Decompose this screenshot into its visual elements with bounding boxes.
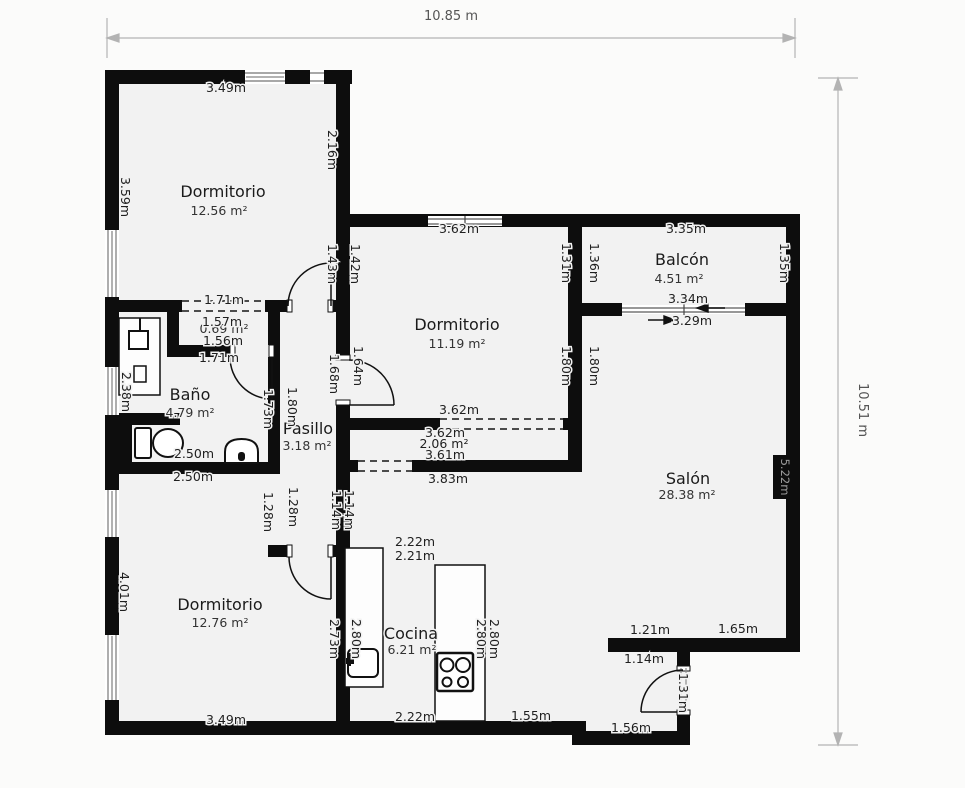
room-label-dorm3: Dormitorio — [177, 595, 262, 614]
measurement-label: 1.31m — [676, 673, 691, 713]
measurement-label: 1.57m — [202, 314, 242, 329]
measurement-label: 1.14m — [342, 490, 357, 530]
measurement-label: 2.16m — [325, 130, 340, 170]
measurement-label: 2.80m — [474, 619, 489, 659]
measurement-label: 1.42m — [348, 244, 363, 284]
measurement-label: 2.73m — [327, 619, 342, 659]
room-area-dorm3: 12.76 m² — [192, 615, 249, 630]
arrow-down-icon — [834, 733, 842, 745]
measurement-label: 3.49m — [206, 712, 246, 727]
room-area-bano: 4.79 m² — [166, 405, 215, 420]
window-icon — [241, 70, 289, 84]
wall — [268, 300, 280, 474]
measurement-label: 1.73m — [261, 389, 276, 429]
room-area-dorm1: 12.56 m² — [191, 203, 248, 218]
measurement-label: 1.36m — [587, 243, 602, 283]
opening-dashed — [358, 460, 412, 472]
overall-width-label: 10.85 m — [424, 9, 478, 24]
wall — [105, 721, 584, 735]
wall-badge-label: 5.22m — [778, 459, 792, 496]
room-area-salon: 28.38 m² — [659, 487, 716, 502]
measurement-label: 2.22m — [395, 534, 435, 549]
measurement-label: 1.64m — [351, 346, 366, 386]
measurement-label: 1.14m — [624, 651, 664, 666]
measurement-label: 2.38m — [119, 372, 134, 412]
arrow-right-icon — [783, 34, 795, 42]
floor-plan: Dormitorio12.56 m²Dormitorio11.19 m²Balc… — [0, 0, 965, 788]
measurement-label: 3.59m — [118, 177, 133, 217]
bath-partition — [119, 413, 132, 462]
measurement-label: 1.71m — [199, 350, 239, 365]
dimension-line-right — [818, 78, 858, 745]
measurement-label: 3.34m — [668, 291, 708, 306]
wall — [333, 300, 350, 312]
wall — [608, 638, 800, 652]
measurement-label: 3.35m — [666, 221, 706, 236]
measurement-label: 3.61m — [425, 447, 465, 462]
room-area-pasillo: 3.18 m² — [283, 438, 332, 453]
measurement-label: 2.22m — [395, 709, 435, 724]
measurement-label: 4.01m — [117, 572, 132, 612]
window-icon — [105, 363, 119, 419]
stove-icon — [437, 653, 473, 691]
room-area-cocina: 6.21 m² — [388, 642, 437, 657]
wall — [349, 460, 358, 472]
kitchen-counter — [345, 548, 383, 687]
room-label-dorm2: Dormitorio — [414, 315, 499, 334]
room-label-dorm1: Dormitorio — [180, 182, 265, 201]
measurement-label: 1.56m — [611, 720, 651, 735]
room-area-dorm2: 11.19 m² — [429, 336, 486, 351]
measurement-label: 3.29m — [672, 313, 712, 328]
measurement-label: 1.56m — [203, 333, 243, 348]
room-area-balcon: 4.51 m² — [655, 271, 704, 286]
measurement-label: 2.50m — [174, 446, 214, 461]
bidet-icon — [225, 439, 258, 463]
wall — [568, 303, 622, 316]
vanity-sink-icon — [129, 331, 148, 349]
measurement-label: 2.21m — [395, 548, 435, 563]
arrow-up-icon — [834, 78, 842, 90]
window-icon — [105, 226, 119, 301]
measurement-label: 1.65m — [718, 621, 758, 636]
wall — [105, 300, 182, 312]
measurement-label: 1.21m — [630, 622, 670, 637]
measurement-label: 3.49m — [206, 80, 246, 95]
wall — [268, 545, 287, 557]
wall — [336, 70, 350, 355]
room-label-bano: Baño — [170, 385, 211, 404]
measurement-label: 3.83m — [428, 471, 468, 486]
measurement-label: 1.80m — [559, 346, 574, 386]
room-label-salon: Salón — [666, 469, 710, 488]
measurement-label: 1.14m — [329, 490, 344, 530]
wall — [745, 303, 800, 316]
window-icon — [105, 631, 119, 704]
dimension-line-top — [107, 18, 795, 58]
room-label-cocina: Cocina — [384, 624, 438, 643]
room-label-balcon: Balcón — [655, 250, 709, 269]
measurement-label: 1.43m — [325, 244, 340, 284]
measurement-label: 3.62m — [439, 402, 479, 417]
measurement-label: 1.80m — [285, 387, 300, 427]
measurement-label: 2.80m — [349, 619, 364, 659]
measurement-label: 2.50m — [173, 469, 213, 484]
measurement-label: 1.55m — [511, 708, 551, 723]
wall — [563, 418, 582, 430]
measurement-label: 1.80m — [587, 346, 602, 386]
measurement-label: 1.35m — [777, 243, 792, 283]
window-icon — [306, 70, 328, 84]
measurement-label: 1.28m — [261, 492, 276, 532]
window-icon — [105, 486, 119, 541]
overall-height-label: 10.51 m — [855, 383, 870, 437]
arrow-left-icon — [107, 34, 119, 42]
measurement-label: 3.62m — [439, 221, 479, 236]
measurement-label: 1.68m — [327, 354, 342, 394]
measurement-label: 1.71m — [204, 292, 244, 307]
measurement-label: 1.28m — [286, 487, 301, 527]
measurement-label: 1.31m — [559, 243, 574, 283]
measurement-label: 2.80m — [487, 619, 502, 659]
floor-plan-page: Dormitorio12.56 m²Dormitorio11.19 m²Balc… — [0, 0, 965, 788]
